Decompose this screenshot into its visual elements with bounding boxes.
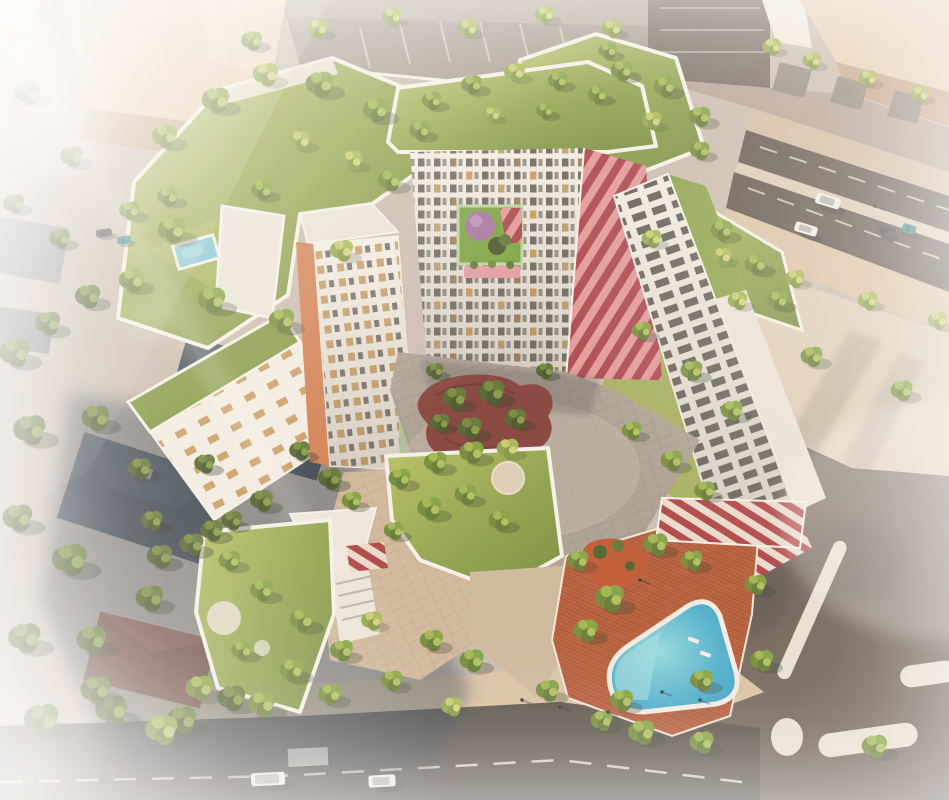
aerial-render-apartment-complex: [0, 0, 949, 800]
warm-tint: [0, 0, 949, 800]
lighting-overlays: [0, 0, 949, 800]
render-canvas: [0, 0, 949, 800]
